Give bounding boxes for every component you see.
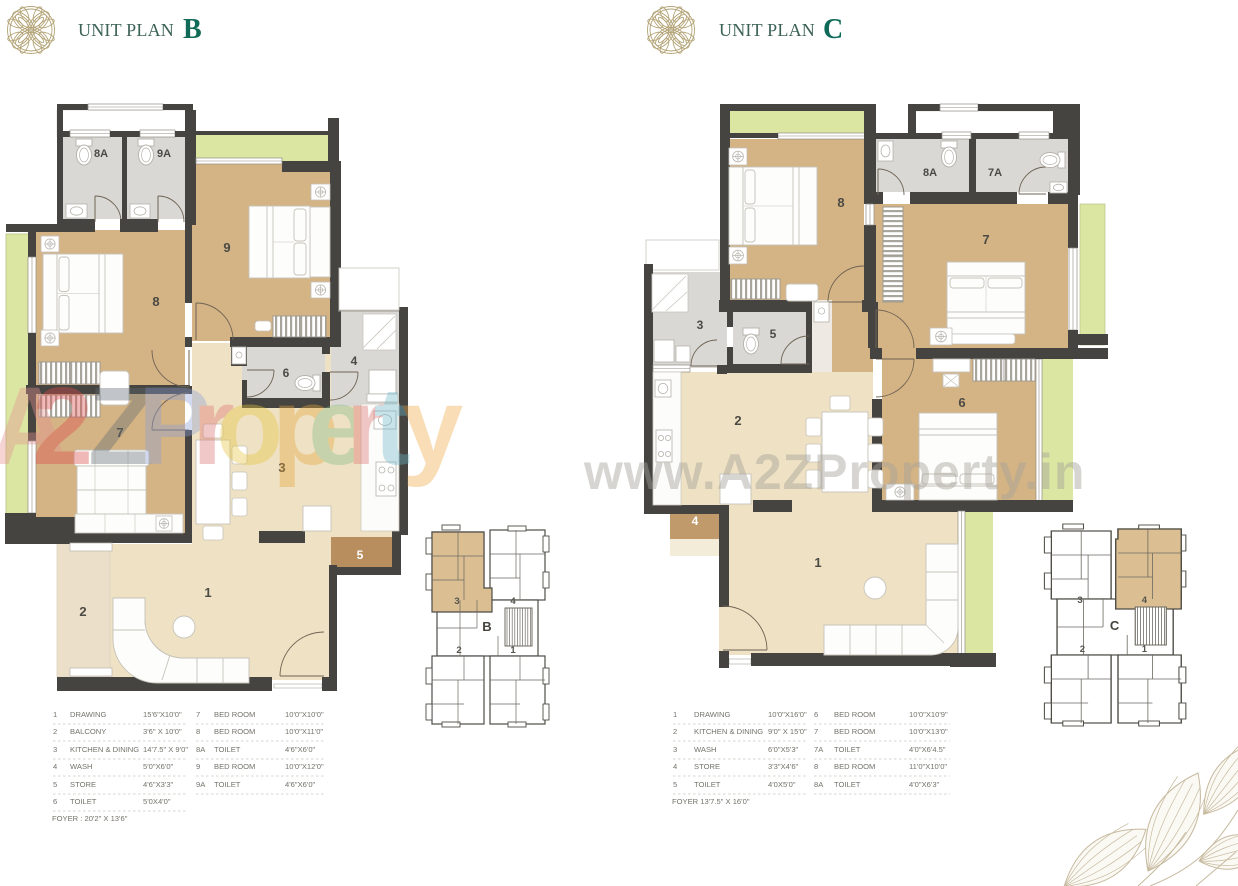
- svg-text:2: 2: [673, 727, 677, 736]
- svg-text:7A: 7A: [988, 167, 1002, 179]
- svg-text:1: 1: [204, 585, 211, 600]
- svg-text:8: 8: [152, 294, 159, 309]
- svg-text:9'0" X 15'0": 9'0" X 15'0": [768, 727, 807, 736]
- svg-text:WASH: WASH: [694, 745, 717, 754]
- svg-text:1: 1: [53, 710, 57, 719]
- svg-text:3: 3: [454, 596, 459, 607]
- svg-text:TOILET: TOILET: [214, 780, 241, 789]
- svg-text:BED ROOM: BED ROOM: [834, 710, 875, 719]
- svg-text:4: 4: [1142, 595, 1148, 606]
- svg-text:7: 7: [982, 232, 989, 247]
- svg-text:10'0"X10'0": 10'0"X10'0": [285, 710, 324, 719]
- svg-text:9: 9: [223, 240, 230, 255]
- svg-text:9A: 9A: [196, 780, 206, 789]
- svg-text:BED ROOM: BED ROOM: [214, 710, 255, 719]
- svg-text:4: 4: [692, 514, 699, 528]
- svg-text:6: 6: [958, 395, 965, 410]
- svg-text:4'0"X6'3": 4'0"X6'3": [909, 780, 940, 789]
- svg-text:9A: 9A: [157, 148, 171, 160]
- svg-text:1: 1: [510, 645, 516, 656]
- svg-text:1: 1: [814, 555, 821, 570]
- svg-text:1: 1: [673, 710, 677, 719]
- svg-text:2: 2: [32, 365, 93, 488]
- svg-text:5: 5: [357, 548, 364, 562]
- svg-text:y: y: [402, 365, 463, 488]
- svg-text:TOILET: TOILET: [214, 745, 241, 754]
- svg-text:4'0"X6'4.5": 4'0"X6'4.5": [909, 745, 946, 754]
- svg-text:STORE: STORE: [694, 762, 720, 771]
- svg-text:4: 4: [53, 762, 57, 771]
- svg-text:2: 2: [456, 645, 461, 656]
- svg-text:BALCONY: BALCONY: [70, 727, 106, 736]
- svg-text:6'0"X5'3": 6'0"X5'3": [768, 745, 799, 754]
- svg-text:8A: 8A: [196, 745, 206, 754]
- svg-text:14'7.5" X 9'0": 14'7.5" X 9'0": [143, 745, 188, 754]
- svg-text:7: 7: [814, 727, 818, 736]
- svg-text:3'3"X4'6": 3'3"X4'6": [768, 762, 799, 771]
- svg-text:10'0"X16'0": 10'0"X16'0": [768, 710, 807, 719]
- svg-text:B: B: [482, 619, 491, 634]
- svg-text:10'0"X12'0": 10'0"X12'0": [285, 762, 324, 771]
- svg-text:2: 2: [53, 727, 57, 736]
- svg-text:BED ROOM: BED ROOM: [834, 762, 875, 771]
- svg-text:3: 3: [673, 745, 677, 754]
- svg-text:TOILET: TOILET: [834, 780, 861, 789]
- svg-text:5'0"X6'0": 5'0"X6'0": [143, 762, 174, 771]
- svg-text:10'0"X13'0": 10'0"X13'0": [909, 727, 948, 736]
- svg-text:C: C: [823, 14, 843, 45]
- svg-text:8A: 8A: [923, 167, 937, 179]
- svg-text:BED ROOM: BED ROOM: [834, 727, 875, 736]
- svg-text:DRAWING: DRAWING: [694, 710, 731, 719]
- svg-text:UNIT PLAN: UNIT PLAN: [719, 20, 815, 40]
- svg-text:5'0X4'0": 5'0X4'0": [143, 797, 171, 806]
- svg-text:6: 6: [53, 797, 57, 806]
- svg-text:www.A2ZProperty.in: www.A2ZProperty.in: [583, 444, 1085, 500]
- svg-text:15'6"X10'0": 15'6"X10'0": [143, 710, 182, 719]
- svg-text:TOILET: TOILET: [834, 745, 861, 754]
- svg-text:9: 9: [196, 762, 200, 771]
- svg-text:B: B: [183, 14, 202, 45]
- svg-text:8A: 8A: [94, 148, 108, 160]
- svg-text:FOYER 13'7.5" X 16'0": FOYER 13'7.5" X 16'0": [672, 797, 750, 806]
- svg-text:KITCHEN & DINING: KITCHEN & DINING: [694, 727, 763, 736]
- svg-text:STORE: STORE: [70, 780, 96, 789]
- svg-text:3: 3: [1077, 595, 1082, 606]
- svg-text:8A: 8A: [814, 780, 824, 789]
- svg-text:1: 1: [1142, 644, 1148, 655]
- svg-text:8: 8: [196, 727, 200, 736]
- svg-text:3'6" X 10'0": 3'6" X 10'0": [143, 727, 182, 736]
- svg-text:10'0"X10'9": 10'0"X10'9": [909, 710, 948, 719]
- svg-text:3: 3: [697, 318, 704, 332]
- svg-text:FOYER : 20'2" X 13'6": FOYER : 20'2" X 13'6": [52, 814, 128, 823]
- svg-text:7: 7: [196, 710, 200, 719]
- svg-text:4: 4: [510, 596, 516, 607]
- svg-text:8: 8: [814, 762, 818, 771]
- svg-text:5: 5: [770, 327, 777, 341]
- svg-text:C: C: [1110, 618, 1120, 633]
- svg-text:11'0"X10'0": 11'0"X10'0": [909, 762, 947, 771]
- svg-text:4'6"X6'0": 4'6"X6'0": [285, 780, 316, 789]
- svg-text:BED ROOM: BED ROOM: [214, 727, 255, 736]
- svg-text:TOILET: TOILET: [694, 780, 721, 789]
- svg-text:2: 2: [734, 413, 741, 428]
- svg-text:WASH: WASH: [70, 762, 93, 771]
- svg-text:KITCHEN & DINING: KITCHEN & DINING: [70, 745, 139, 754]
- svg-text:4: 4: [673, 762, 677, 771]
- svg-text:4'6"X6'0": 4'6"X6'0": [285, 745, 316, 754]
- svg-text:TOILET: TOILET: [70, 797, 97, 806]
- svg-text:6: 6: [814, 710, 818, 719]
- svg-text:BED ROOM: BED ROOM: [214, 762, 255, 771]
- svg-text:7A: 7A: [814, 745, 824, 754]
- svg-text:4'0X5'0": 4'0X5'0": [768, 780, 796, 789]
- svg-text:10'0"X11'0": 10'0"X11'0": [285, 727, 323, 736]
- svg-text:UNIT PLAN: UNIT PLAN: [78, 20, 174, 40]
- svg-text:2: 2: [79, 604, 86, 619]
- svg-text:5: 5: [673, 780, 677, 789]
- svg-text:8: 8: [837, 195, 844, 210]
- svg-text:4'6"X3'3": 4'6"X3'3": [143, 780, 174, 789]
- svg-text:5: 5: [53, 780, 57, 789]
- svg-text:DRAWING: DRAWING: [70, 710, 107, 719]
- svg-text:3: 3: [53, 745, 57, 754]
- svg-text:2: 2: [1080, 644, 1085, 655]
